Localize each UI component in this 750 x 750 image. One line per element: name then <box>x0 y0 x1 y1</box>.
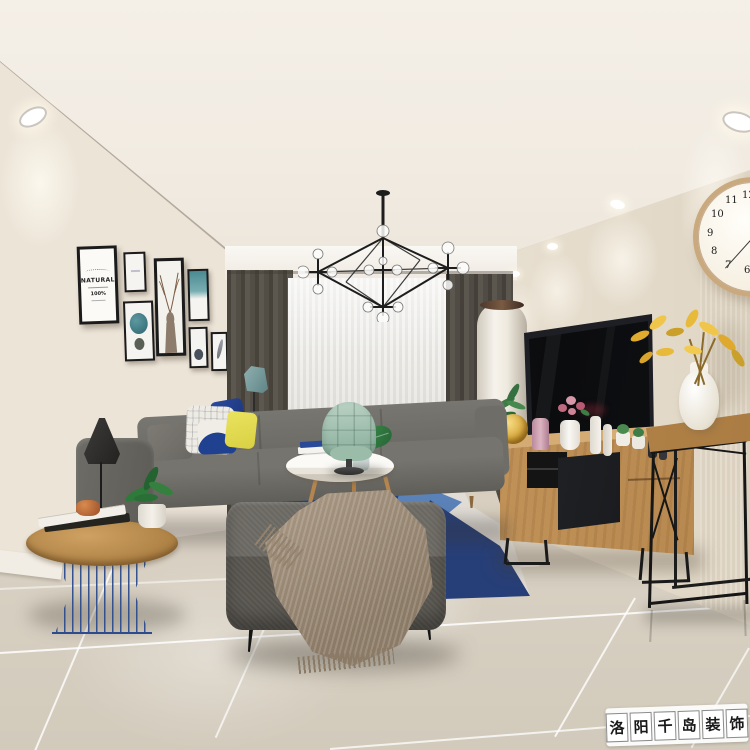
watermark-char: 岛 <box>677 710 700 740</box>
clock-numeral: 10 <box>711 209 724 220</box>
white-bottle <box>590 416 601 454</box>
frame-art <box>213 334 227 369</box>
feather <box>216 339 224 359</box>
white-bottle <box>603 424 612 456</box>
leaf <box>579 408 590 417</box>
frame-art <box>189 271 207 319</box>
console-floor-shadow <box>646 606 750 624</box>
poster-title: NATURAL <box>81 276 115 284</box>
clock-numeral: 9 <box>707 228 713 239</box>
succulent-pot <box>632 436 645 449</box>
frame-art <box>125 254 144 291</box>
picture-frame-small <box>188 327 208 368</box>
watermark-char: 装 <box>701 709 724 739</box>
seat-seam <box>257 452 261 484</box>
blossom <box>647 313 668 332</box>
picture-frame-teal-abstract <box>187 269 209 322</box>
armchair-base <box>334 467 364 475</box>
clock-second-hand <box>725 237 750 269</box>
poster-line <box>92 300 106 301</box>
poster-percent: 100% <box>90 291 106 298</box>
blossom <box>665 326 684 337</box>
clock-numeral: 11 <box>725 195 738 206</box>
poster-arc-line <box>86 269 110 275</box>
frame-art <box>125 303 153 360</box>
watermark-char: 饰 <box>725 708 748 738</box>
blossom <box>729 347 747 368</box>
flower <box>558 404 567 412</box>
leaf <box>506 399 527 411</box>
copper-cup <box>76 500 100 516</box>
art-mark <box>130 270 139 272</box>
blossom <box>629 328 651 343</box>
picture-frame-feather <box>211 332 229 371</box>
recessed-spotlight <box>547 243 558 250</box>
watermark: 洛 阳 千 岛 装 饰 <box>605 704 748 747</box>
poster-art: NATURAL 100% <box>80 248 116 321</box>
picture-frame-circle-art <box>123 300 155 361</box>
flower <box>566 396 576 405</box>
potted-plant-leaves <box>120 468 178 512</box>
deer-illustration <box>157 261 183 354</box>
chandelier <box>298 186 470 322</box>
side-table-wire-rim <box>52 632 152 634</box>
living-room-render: NATURAL 100% <box>0 0 750 750</box>
picture-frame-deer <box>154 258 187 357</box>
teal-circle <box>129 313 148 335</box>
succulent-pot <box>616 432 630 446</box>
picture-frame-small <box>123 252 146 293</box>
yellow-flower-spray <box>626 306 750 398</box>
blossom <box>683 344 702 356</box>
poster-line <box>88 287 108 289</box>
clock-numeral: 12 <box>742 190 750 201</box>
pillow-yellow <box>224 411 258 450</box>
frame-art <box>191 329 207 366</box>
picture-frame-natural-poster: NATURAL 100% <box>77 245 120 324</box>
dark-blob <box>134 338 145 351</box>
watermark-char: 洛 <box>606 712 629 742</box>
tv-stand-leg-bar <box>506 562 550 565</box>
dark-blob <box>194 349 203 360</box>
blossom <box>683 308 701 330</box>
succulent <box>617 424 629 434</box>
succulent <box>633 428 644 437</box>
flower <box>568 408 576 415</box>
ac-top-ring <box>480 300 524 310</box>
blossom <box>638 350 655 366</box>
clock-numeral: 6 <box>744 265 750 276</box>
pink-candle-jar <box>532 418 549 450</box>
spotlight-glow-left <box>0 118 80 248</box>
watermark-char: 千 <box>654 711 677 741</box>
leaf <box>134 493 158 503</box>
deer-art <box>157 261 183 354</box>
clock-numeral: 8 <box>711 246 717 257</box>
wall-light-scallop <box>585 212 659 307</box>
blossom <box>656 347 675 357</box>
white-vase <box>560 420 580 450</box>
watermark-char: 阳 <box>630 711 653 741</box>
